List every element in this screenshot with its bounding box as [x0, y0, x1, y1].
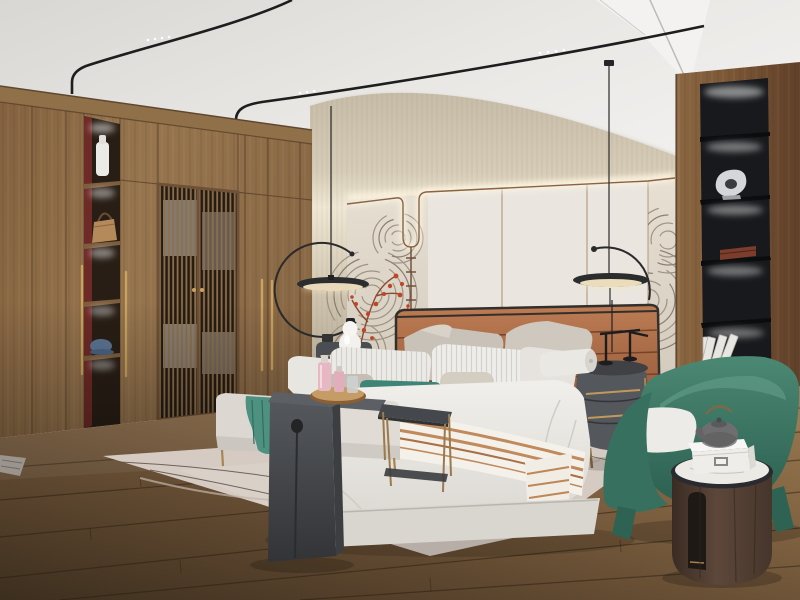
table-body	[672, 474, 772, 585]
scene-canvas	[0, 0, 800, 600]
bolster-pillow	[540, 349, 597, 377]
pendant-underside	[580, 279, 642, 287]
wardrobe	[0, 86, 312, 438]
lattice-knob	[192, 288, 196, 292]
bedroom-render	[0, 0, 800, 600]
pendant-underside	[303, 283, 363, 291]
lattice-knob	[200, 288, 204, 292]
table-notch	[688, 492, 706, 570]
